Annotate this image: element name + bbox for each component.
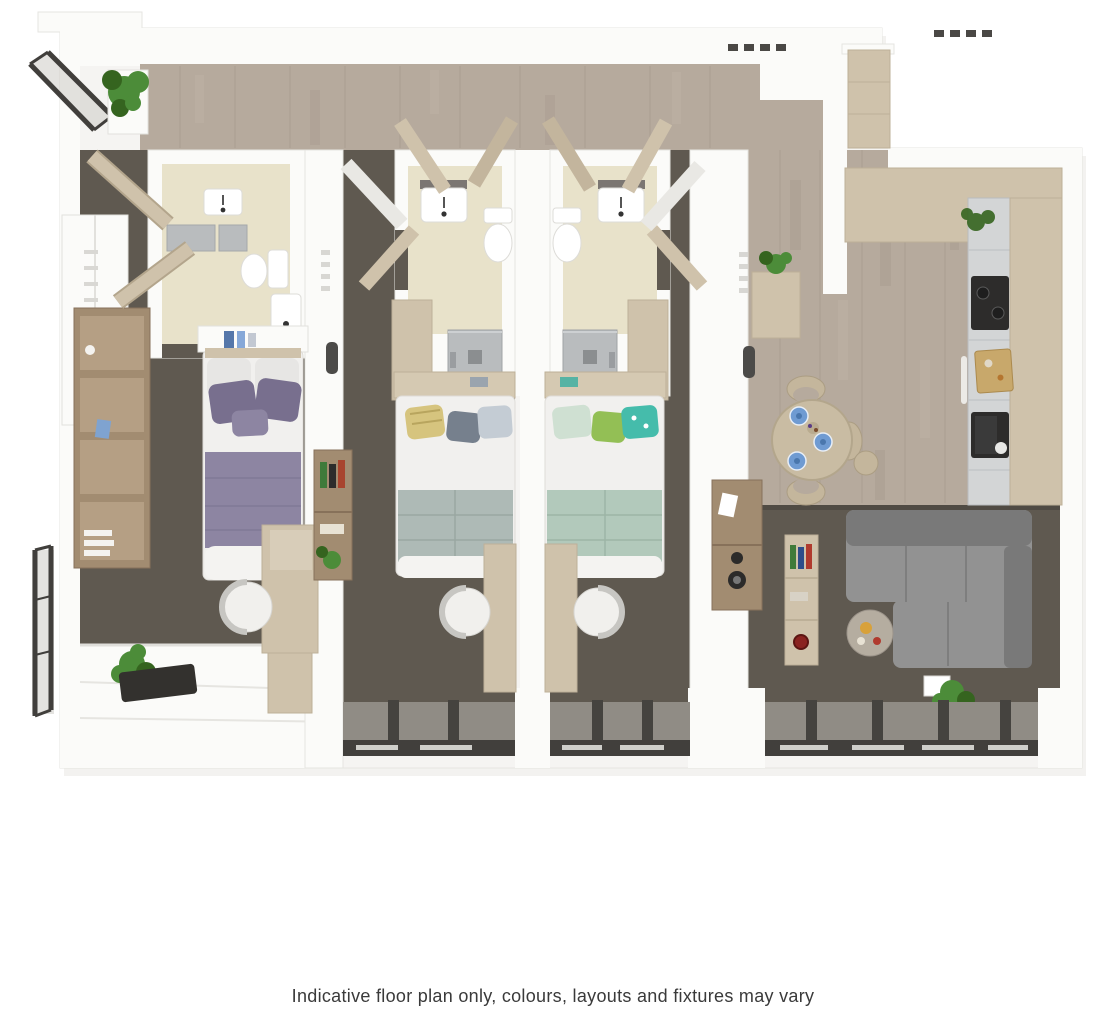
ceiling-vent [934, 30, 992, 37]
plant-foliage [125, 95, 141, 111]
window-living [765, 700, 1038, 756]
sofa-back [846, 510, 1032, 546]
toilet-3 [553, 208, 581, 262]
wall-bed2-bed3 [520, 396, 545, 703]
kitchen-counter-east [1010, 198, 1062, 505]
desk-chair-3 [574, 588, 622, 636]
bed-1-headboard [205, 348, 301, 358]
bed3-door-handle [743, 346, 755, 378]
entry-cabinet [842, 44, 894, 148]
bookshelf [785, 535, 818, 665]
east-wall [1060, 148, 1082, 768]
hob [971, 276, 1009, 330]
window-pier-south-1 [688, 688, 765, 768]
hallway-planter [102, 70, 149, 134]
pillow-dot [644, 424, 649, 429]
stool [854, 451, 878, 475]
chopping-board [975, 349, 1014, 393]
wall-kitchen-stub [823, 96, 847, 294]
pillow [231, 409, 268, 437]
pillow [551, 404, 592, 440]
toilet-2 [484, 208, 512, 262]
shower-mat [167, 225, 215, 251]
wall-shelf-1 [314, 450, 352, 580]
sink-2 [421, 188, 467, 222]
window-bedroom-3 [550, 700, 690, 756]
headboard-item [560, 377, 578, 387]
headboard-item [470, 377, 488, 387]
wall-bathroom-divider [515, 150, 550, 396]
pouf-table [847, 610, 893, 656]
window-bedroom-2 [343, 700, 515, 756]
pillow [621, 404, 660, 439]
media-cabinet [712, 480, 762, 610]
north-wall [60, 28, 882, 66]
floor-plan-render [0, 0, 1106, 1030]
desk-3 [545, 544, 577, 692]
desk-chair-2 [442, 588, 490, 636]
floor-plan-page: Indicative floor plan only, colours, lay… [0, 0, 1106, 1030]
plant-foliage [102, 70, 122, 90]
pillow [477, 405, 513, 439]
kitchen-sink [971, 412, 1009, 458]
bed-2-headboard [394, 372, 515, 398]
shower-mat [219, 225, 247, 251]
dining-table [772, 400, 852, 480]
sink-1 [204, 189, 242, 215]
oven-handle [961, 356, 967, 404]
sofa-arm [1004, 546, 1032, 668]
crate-shelf [74, 308, 150, 568]
balcony-bottom-left [32, 546, 54, 716]
sink-3 [598, 188, 644, 222]
plant-foliage [127, 71, 149, 93]
desk-chair-1 [222, 582, 272, 632]
desk-1 [262, 525, 318, 713]
kitchen-north-wall [888, 148, 1082, 170]
pillow [446, 410, 483, 443]
bed2-door-handle [326, 342, 338, 374]
carpet-shadow [748, 505, 1060, 510]
window-pier-south-2 [515, 688, 550, 768]
pillow-dot [632, 416, 637, 421]
disclaimer-caption: Indicative floor plan only, colours, lay… [0, 986, 1106, 1007]
